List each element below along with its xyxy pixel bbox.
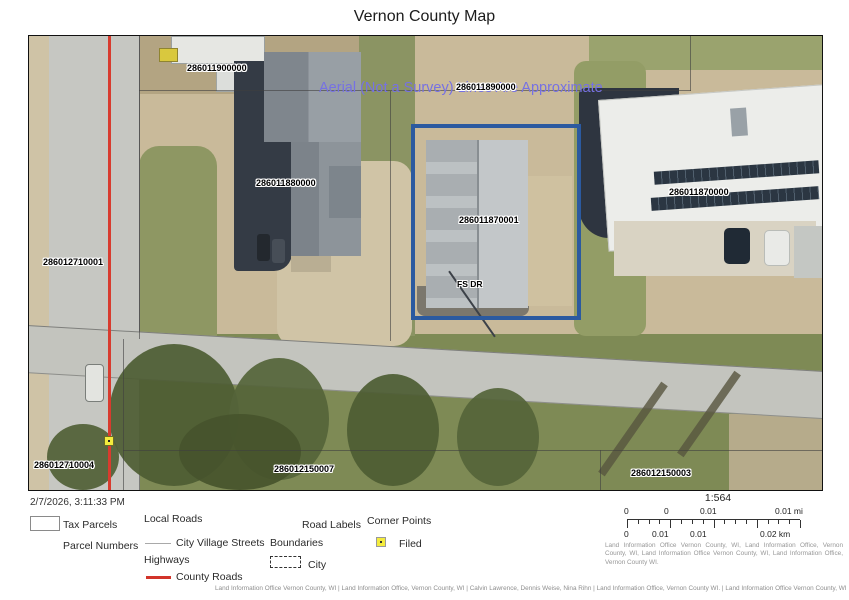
scale-mi-label: 0.01 bbox=[700, 506, 717, 516]
page-title: Vernon County Map bbox=[0, 8, 849, 26]
corner-point-marker bbox=[104, 436, 114, 446]
scale-mi-label: 0 bbox=[624, 506, 629, 516]
footer-attribution: Land Information Office Vernon County, W… bbox=[215, 585, 847, 592]
aerial-vehicle bbox=[85, 364, 104, 402]
legend-boundaries: Boundaries bbox=[270, 537, 323, 549]
aerial-vehicle bbox=[724, 228, 750, 264]
parcel-number-label: 286011890000 bbox=[456, 82, 516, 92]
road-label: FS DR bbox=[457, 279, 483, 289]
scale-tick bbox=[627, 520, 628, 528]
legend-corner-points: Corner Points bbox=[367, 515, 431, 527]
parcel-number-label: 286011870001 bbox=[459, 215, 519, 225]
scale-tick bbox=[757, 520, 758, 528]
aerial-tree bbox=[457, 388, 539, 486]
scale-tick bbox=[714, 520, 715, 528]
scale-attribution: Land Information Office Vernon County, W… bbox=[605, 542, 843, 567]
scale-tick bbox=[703, 520, 704, 524]
tax-parcels-swatch bbox=[30, 516, 60, 531]
county-road-line bbox=[108, 36, 111, 490]
scale-tick bbox=[735, 520, 736, 524]
parcel-number-label: 286012710004 bbox=[34, 460, 94, 470]
scale-tick bbox=[638, 520, 639, 524]
scale-tick bbox=[800, 520, 801, 528]
aerial-building bbox=[171, 36, 265, 64]
parcel-number-label: 286011880000 bbox=[256, 178, 316, 188]
aerial-chimney bbox=[730, 107, 748, 136]
legend-tax-parcels: Tax Parcels bbox=[63, 519, 117, 531]
legend-parcel-numbers: Parcel Numbers bbox=[63, 540, 138, 552]
aerial-vehicle bbox=[159, 48, 178, 62]
scale-km-label: 0 bbox=[624, 529, 629, 539]
export-timestamp: 2/7/2026, 3:11:33 PM bbox=[30, 497, 125, 508]
scale-km-label: 0.01 bbox=[652, 529, 669, 539]
aerial-tree bbox=[347, 374, 439, 486]
city-village-streets-swatch bbox=[145, 543, 171, 544]
parcel-number-label: 286012150003 bbox=[631, 468, 691, 478]
scale-tick bbox=[649, 520, 650, 524]
legend-filed: Filed bbox=[399, 538, 422, 550]
legend-city-village-streets: City Village Streets bbox=[176, 537, 265, 549]
scale-tick bbox=[768, 520, 769, 524]
legend-highways: Highways bbox=[144, 554, 190, 566]
parcel-number-label: 286012710001 bbox=[43, 257, 103, 267]
scale-tick bbox=[670, 520, 671, 528]
parcel-boundary-line bbox=[390, 91, 391, 341]
legend-road-labels: Road Labels bbox=[302, 519, 361, 531]
aerial-tree bbox=[179, 414, 301, 490]
scale-ratio: 1:564 bbox=[608, 492, 828, 504]
scale-km-label: 0.02 km bbox=[760, 529, 790, 539]
parcel-boundary-line bbox=[139, 36, 140, 339]
map-print-page: Vernon County Map bbox=[0, 0, 849, 600]
parcel-boundary-line bbox=[600, 450, 601, 490]
scale-mi-label: 0.01 mi bbox=[775, 506, 803, 516]
scale-tick bbox=[681, 520, 682, 524]
county-roads-swatch bbox=[146, 576, 171, 579]
parcel-number-label: 286011900000 bbox=[187, 63, 247, 73]
city-boundary-swatch bbox=[270, 556, 301, 568]
parcel-boundary-line bbox=[123, 339, 124, 490]
aerial-building bbox=[264, 52, 361, 142]
scale-tick bbox=[778, 520, 779, 524]
scale-ruler bbox=[627, 519, 800, 529]
scale-tick bbox=[789, 520, 790, 524]
aerial-vehicle bbox=[272, 239, 285, 263]
parcel-number-label: 286012150007 bbox=[274, 464, 334, 474]
aerial-vehicle bbox=[257, 234, 270, 261]
scale-tick bbox=[724, 520, 725, 524]
legend-local-roads: Local Roads bbox=[144, 513, 202, 525]
scale-tick bbox=[746, 520, 747, 524]
scale-tick bbox=[659, 520, 660, 524]
scale-mi-label: 0 bbox=[664, 506, 669, 516]
legend-city: City bbox=[308, 559, 326, 571]
aerial-vehicle bbox=[764, 230, 790, 266]
parcel-number-label: 286011870000 bbox=[669, 187, 729, 197]
aerial-deck bbox=[291, 256, 331, 272]
aerial-grass-area bbox=[139, 146, 217, 361]
legend-county-roads: County Roads bbox=[176, 571, 243, 583]
parcel-boundary-line bbox=[690, 36, 691, 91]
map-viewport: Aerial (Not a Survey) Lines Are Approxim… bbox=[28, 35, 823, 491]
aerial-building bbox=[794, 226, 822, 278]
filed-corner-point-swatch bbox=[376, 537, 386, 547]
scale-km-label: 0.01 bbox=[690, 529, 707, 539]
aerial-dirt-area bbox=[729, 414, 822, 490]
scale-tick bbox=[692, 520, 693, 524]
parcel-boundary-line bbox=[123, 450, 822, 451]
aerial-building bbox=[329, 166, 361, 218]
